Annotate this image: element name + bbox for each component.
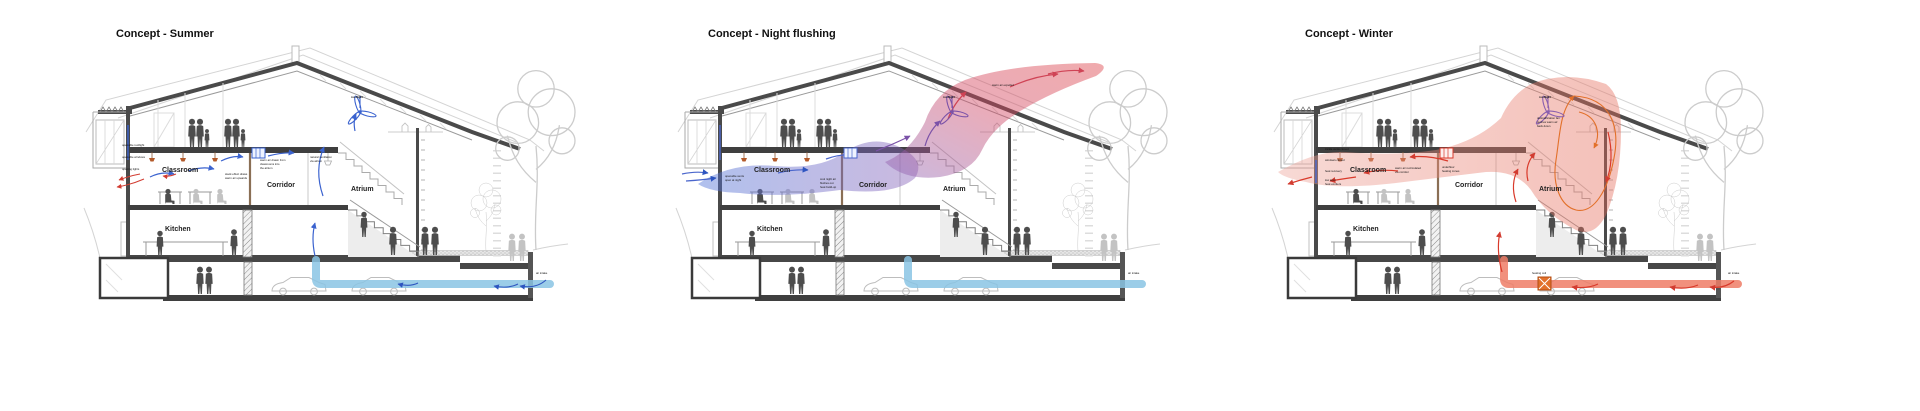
svg-text:heating zones: heating zones xyxy=(1442,169,1460,173)
svg-text:back down: back down xyxy=(1537,124,1551,128)
corridor-label: Corridor xyxy=(267,182,295,189)
ceiling-fan-icon xyxy=(347,96,376,126)
svg-text:warm air upwards: warm air upwards xyxy=(225,176,248,180)
air-intake-label: air intake xyxy=(536,271,548,275)
svg-text:via corridor: via corridor xyxy=(1395,170,1409,174)
svg-text:via atrium: via atrium xyxy=(310,159,323,163)
classroom-label: Classroom xyxy=(1350,167,1386,174)
transfer-grille xyxy=(844,148,857,158)
svg-text:trickle vents closed: trickle vents closed xyxy=(1325,147,1349,151)
svg-text:opening lights: opening lights xyxy=(122,167,140,171)
ventilation-concept-diagrams: Concept - Summer rooflight xyxy=(0,0,1920,411)
svg-text:openable rooflight: openable rooflight xyxy=(122,143,144,147)
rooflight-label: rooflight xyxy=(1539,95,1551,99)
classroom-label: Classroom xyxy=(162,167,198,174)
night-flush-cloud xyxy=(698,63,1104,195)
diagram-canvas: Concept - Summer rooflight xyxy=(0,0,1920,411)
panel-winter: Concept - Winter xyxy=(1272,28,1763,301)
atrium-label: Atrium xyxy=(1539,186,1562,193)
svg-text:windows closed: windows closed xyxy=(1325,158,1345,162)
rooflight-label: rooflight xyxy=(351,95,363,99)
panel-title: Concept - Summer xyxy=(116,28,215,40)
corridor-label: Corridor xyxy=(859,182,887,189)
kitchen-label: Kitchen xyxy=(1353,226,1379,233)
svg-text:heat build-up: heat build-up xyxy=(820,185,837,189)
transfer-grille xyxy=(1440,148,1453,158)
panel-title: Concept - Night flushing xyxy=(708,28,836,40)
kitchen-label: Kitchen xyxy=(165,226,191,233)
kitchen-label: Kitchen xyxy=(757,226,783,233)
svg-text:the atrium: the atrium xyxy=(260,166,273,170)
transfer-grille xyxy=(252,148,265,158)
svg-text:openable windows: openable windows xyxy=(122,155,146,159)
summer-exhaust-arrows xyxy=(117,174,176,187)
atrium-label: Atrium xyxy=(943,186,966,193)
panel-title: Concept - Winter xyxy=(1305,28,1394,40)
heater-label: heating coil xyxy=(1532,271,1547,275)
air-out-label: warm air expelled xyxy=(992,83,1014,87)
air-intake-label: air intake xyxy=(1128,271,1140,275)
svg-text:open at night: open at night xyxy=(725,178,741,182)
atrium-label: Atrium xyxy=(351,186,374,193)
svg-text:heat emitters: heat emitters xyxy=(1325,182,1342,186)
air-intake-label: air intake xyxy=(1728,271,1740,275)
classroom-label: Classroom xyxy=(754,167,790,174)
rooflight-label: rooflight xyxy=(943,95,955,99)
panel-summer: Concept - Summer rooflight xyxy=(84,28,575,301)
panel-night-flushing: Concept - Night flushing rooflight xyxy=(676,28,1167,301)
heating-coil-icon xyxy=(1538,277,1551,290)
svg-text:heat recovery: heat recovery xyxy=(1325,169,1343,173)
corridor-label: Corridor xyxy=(1455,182,1483,189)
